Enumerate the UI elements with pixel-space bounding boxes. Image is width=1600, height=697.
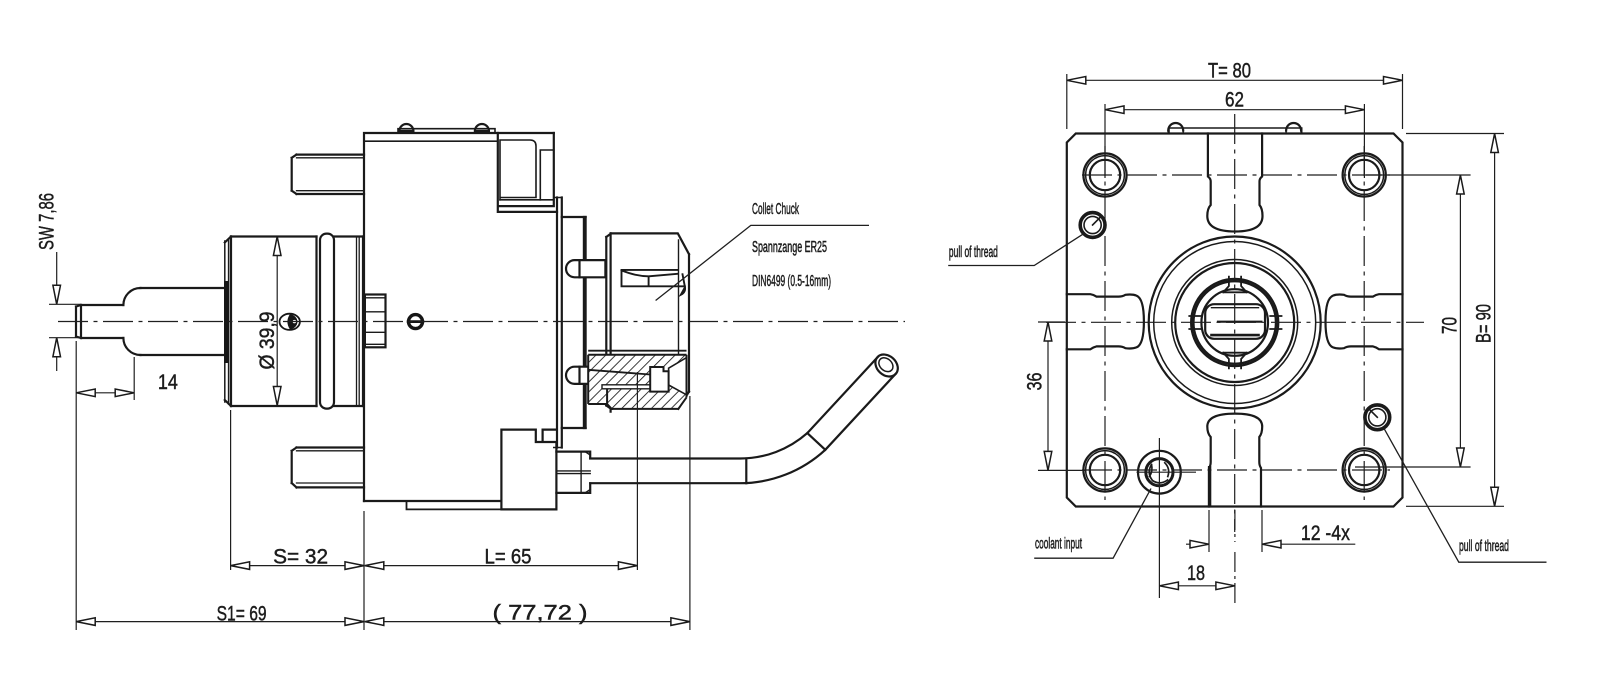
svg-text:B= 90: B= 90 — [1473, 304, 1496, 343]
svg-text:62: 62 — [1225, 89, 1244, 112]
svg-text:Collet Chuck: Collet Chuck — [752, 201, 799, 218]
svg-text:L= 65: L= 65 — [485, 546, 532, 569]
svg-text:70: 70 — [1439, 317, 1462, 334]
svg-text:S= 32: S= 32 — [273, 546, 328, 569]
svg-text:36: 36 — [1024, 373, 1047, 391]
svg-text:Spannzange ER25: Spannzange ER25 — [752, 239, 827, 256]
svg-text:14: 14 — [158, 371, 178, 394]
svg-text:DIN6499 (0.5-16mm): DIN6499 (0.5-16mm) — [752, 273, 831, 290]
svg-text:pull of thread: pull of thread — [949, 244, 998, 261]
svg-text:coolant input: coolant input — [1035, 536, 1082, 553]
svg-text:18: 18 — [1187, 562, 1205, 585]
svg-text:S1= 69: S1= 69 — [217, 603, 267, 626]
svg-text:Ø 39,9: Ø 39,9 — [256, 312, 279, 370]
svg-text:SW 7,86: SW 7,86 — [36, 193, 59, 250]
svg-text:12 -4x: 12 -4x — [1301, 522, 1350, 545]
svg-text:pull of thread: pull of thread — [1459, 538, 1509, 555]
svg-text:( 77,72 ): ( 77,72 ) — [493, 601, 588, 624]
svg-text:T= 80: T= 80 — [1208, 60, 1251, 83]
